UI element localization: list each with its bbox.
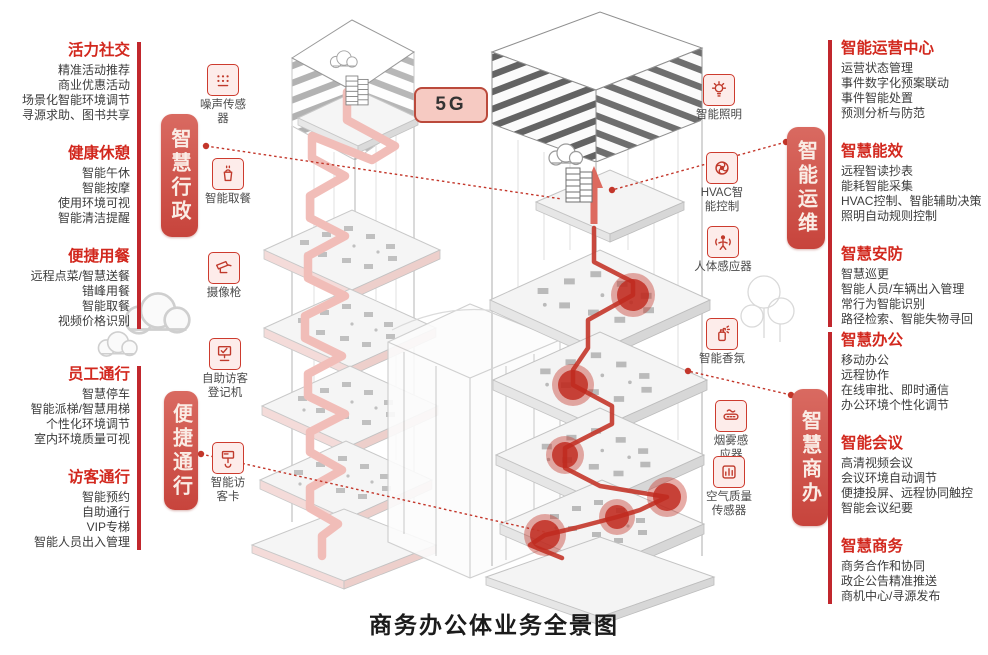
pill-smart-operations: 智能运维 xyxy=(787,127,825,249)
feature-item: 智能派梯/智慧用梯 xyxy=(8,402,130,417)
pill-smart-administration: 智慧行政 xyxy=(161,114,198,237)
feature-group: 智能会议 高清视频会议会议环境自动调节便捷投屏、远程协同触控智能会议纪要 xyxy=(841,435,988,516)
feature-item: 事件智能处置 xyxy=(841,91,988,106)
badge-5g: 5G xyxy=(414,87,488,123)
feature-item: 远程点菜/智慧送餐 xyxy=(8,269,130,284)
feature-item: 智能取餐 xyxy=(8,299,130,314)
feature-group-title: 智慧安防 xyxy=(841,246,988,264)
feature-group-items: 商务合作和协同政企公告精准推送商机中心/寻源发布 xyxy=(841,559,988,604)
feature-group-items: 高清视频会议会议环境自动调节便捷投屏、远程协同触控智能会议纪要 xyxy=(841,456,988,516)
feature-item: 常行为智能识别 xyxy=(841,297,988,312)
fragrance-icon xyxy=(706,318,738,350)
feature-group-items: 远程点菜/智慧送餐错峰用餐智能取餐视频价格识别 xyxy=(8,269,130,329)
feature-group: 健康休憩 智能午休智能按摩使用环境可视智能清洁提醒 xyxy=(8,145,130,226)
feature-item: 智能按摩 xyxy=(8,181,130,196)
feature-column-left-top: 活力社交 精准活动推荐商业优惠活动场景化智能环境调节寻源求助、图书共享 健康休憩… xyxy=(8,42,141,329)
feature-group: 员工通行 智慧停车智能派梯/智慧用梯个性化环境调节室内环境质量可视 xyxy=(8,366,130,447)
feature-item: 自助通行 xyxy=(8,505,130,520)
feature-group: 便捷用餐 远程点菜/智慧送餐错峰用餐智能取餐视频价格识别 xyxy=(8,248,130,329)
feature-group-items: 运营状态管理事件数字化预案联动事件智能处置预测分析与防范 xyxy=(841,61,988,121)
feature-item: 会议环境自动调节 xyxy=(841,471,988,486)
sensor-visitor-kiosk: 自助访客 登记机 xyxy=(194,338,256,400)
pill-convenient-access: 便捷通行 xyxy=(164,391,198,510)
feature-group: 智慧办公 移动办公远程协作在线审批、即时通信办公环境个性化调节 xyxy=(841,332,988,413)
noise-sensor-icon xyxy=(207,64,239,96)
feature-item: 高清视频会议 xyxy=(841,456,988,471)
feature-group-title: 健康休憩 xyxy=(8,145,130,163)
feature-group-title: 智慧商务 xyxy=(841,538,988,556)
sensor-presence: 人体感应器 xyxy=(692,226,754,275)
sensor-label: HVAC智 能控制 xyxy=(691,187,753,214)
sensor-air-quality: 空气质量 传感器 xyxy=(698,456,760,518)
hvac-control-icon xyxy=(706,152,738,184)
feature-item: HVAC控制、智能辅助决策 xyxy=(841,194,988,209)
feature-group-title: 智能运营中心 xyxy=(841,40,988,58)
feature-item: 远程智读抄表 xyxy=(841,164,988,179)
feature-group-title: 便捷用餐 xyxy=(8,248,130,266)
sensor-label: 噪声传感 器 xyxy=(192,99,254,126)
feature-item: 能耗智能采集 xyxy=(841,179,988,194)
sensor-label: 智能访 客卡 xyxy=(197,477,259,504)
feature-column-right-top: 智能运营中心 运营状态管理事件数字化预案联动事件智能处置预测分析与防范 智慧能效… xyxy=(828,40,988,327)
sensor-label: 摄像枪 xyxy=(193,287,255,301)
feature-group: 智慧能效 远程智读抄表能耗智能采集HVAC控制、智能辅助决策照明自动规则控制 xyxy=(841,143,988,224)
visitor-card-icon xyxy=(212,442,244,474)
feature-item: 政企公告精准推送 xyxy=(841,574,988,589)
visitor-kiosk-icon xyxy=(209,338,241,370)
panorama-diagram: 活力社交 精准活动推荐商业优惠活动场景化智能环境调节寻源求助、图书共享 健康休憩… xyxy=(0,0,988,655)
feature-group-title: 智慧办公 xyxy=(841,332,988,350)
feature-group-title: 智慧能效 xyxy=(841,143,988,161)
smart-lighting-icon xyxy=(703,74,735,106)
feature-item: 路径检索、智能失物寻回 xyxy=(841,312,988,327)
feature-item: 照明自动规则控制 xyxy=(841,209,988,224)
feature-item: 错峰用餐 xyxy=(8,284,130,299)
feature-column-right-bottom: 智慧办公 移动办公远程协作在线审批、即时通信办公环境个性化调节 智能会议 高清视… xyxy=(828,332,988,604)
sensor-fragrance: 智能香氛 xyxy=(691,318,753,367)
feature-item: 智慧巡更 xyxy=(841,267,988,282)
sensor-noise: 噪声传感 器 xyxy=(192,64,254,126)
sensor-label: 智能取餐 xyxy=(197,193,259,207)
feature-item: 智能人员出入管理 xyxy=(8,535,130,550)
feature-group-items: 智能午休智能按摩使用环境可视智能清洁提醒 xyxy=(8,166,130,226)
feature-item: VIP专梯 xyxy=(8,520,130,535)
feature-item: 事件数字化预案联动 xyxy=(841,76,988,91)
feature-item: 便捷投屏、远程协同触控 xyxy=(841,486,988,501)
feature-group-title: 活力社交 xyxy=(8,42,130,60)
feature-item: 在线审批、即时通信 xyxy=(841,383,988,398)
feature-item: 智能人员/车辆出入管理 xyxy=(841,282,988,297)
feature-group-items: 远程智读抄表能耗智能采集HVAC控制、智能辅助决策照明自动规则控制 xyxy=(841,164,988,224)
sensor-smart-lighting: 智能照明 xyxy=(688,74,750,123)
presence-sensor-icon xyxy=(707,226,739,258)
feature-group-title: 智能会议 xyxy=(841,435,988,453)
feature-item: 精准活动推荐 xyxy=(8,63,130,78)
feature-item: 移动办公 xyxy=(841,353,988,368)
cctv-camera-icon xyxy=(208,252,240,284)
feature-item: 商机中心/寻源发布 xyxy=(841,589,988,604)
feature-item: 预测分析与防范 xyxy=(841,106,988,121)
feature-item: 智能预约 xyxy=(8,490,130,505)
food-pickup-icon xyxy=(212,158,244,190)
feature-item: 商务合作和协同 xyxy=(841,559,988,574)
air-quality-icon xyxy=(713,456,745,488)
feature-group-items: 精准活动推荐商业优惠活动场景化智能环境调节寻源求助、图书共享 xyxy=(8,63,130,123)
feature-item: 场景化智能环境调节 xyxy=(8,93,130,108)
feature-group-items: 智慧停车智能派梯/智慧用梯个性化环境调节室内环境质量可视 xyxy=(8,387,130,447)
feature-item: 使用环境可视 xyxy=(8,196,130,211)
sensor-label: 智能照明 xyxy=(688,109,750,123)
feature-column-left-bottom: 员工通行 智慧停车智能派梯/智慧用梯个性化环境调节室内环境质量可视 访客通行 智… xyxy=(8,366,141,550)
feature-item: 个性化环境调节 xyxy=(8,417,130,432)
feature-group-title: 访客通行 xyxy=(8,469,130,487)
sensor-cctv-camera: 摄像枪 xyxy=(193,252,255,301)
feature-group-title: 员工通行 xyxy=(8,366,130,384)
feature-item: 远程协作 xyxy=(841,368,988,383)
feature-item: 智能午休 xyxy=(8,166,130,181)
feature-item: 商业优惠活动 xyxy=(8,78,130,93)
sensor-food-pickup: 智能取餐 xyxy=(197,158,259,207)
feature-group-items: 移动办公远程协作在线审批、即时通信办公环境个性化调节 xyxy=(841,353,988,413)
sensor-label: 人体感应器 xyxy=(692,261,754,275)
pill-smart-business-office: 智慧商办 xyxy=(792,389,828,526)
feature-item: 智慧停车 xyxy=(8,387,130,402)
smoke-sensor-icon xyxy=(715,400,747,432)
sensor-visitor-card: 智能访 客卡 xyxy=(197,442,259,504)
feature-item: 室内环境质量可视 xyxy=(8,432,130,447)
page-title: 商务办公体业务全景图 xyxy=(0,606,988,640)
feature-group-items: 智慧巡更智能人员/车辆出入管理常行为智能识别路径检索、智能失物寻回 xyxy=(841,267,988,327)
feature-group: 智能运营中心 运营状态管理事件数字化预案联动事件智能处置预测分析与防范 xyxy=(841,40,988,121)
feature-item: 智能会议纪要 xyxy=(841,501,988,516)
feature-group: 活力社交 精准活动推荐商业优惠活动场景化智能环境调节寻源求助、图书共享 xyxy=(8,42,130,123)
sensor-label: 空气质量 传感器 xyxy=(698,491,760,518)
feature-item: 寻源求助、图书共享 xyxy=(8,108,130,123)
feature-item: 智能清洁提醒 xyxy=(8,211,130,226)
sensor-label: 自助访客 登记机 xyxy=(194,373,256,400)
sensor-smoke: 烟雾感 应器 xyxy=(700,400,762,462)
feature-group: 访客通行 智能预约自助通行VIP专梯智能人员出入管理 xyxy=(8,469,130,550)
feature-group-items: 智能预约自助通行VIP专梯智能人员出入管理 xyxy=(8,490,130,550)
right-tower xyxy=(486,12,714,625)
sensor-hvac-control: HVAC智 能控制 xyxy=(691,152,753,214)
sensor-label: 智能香氛 xyxy=(691,353,753,367)
feature-item: 办公环境个性化调节 xyxy=(841,398,988,413)
feature-item: 运营状态管理 xyxy=(841,61,988,76)
feature-item: 视频价格识别 xyxy=(8,314,130,329)
feature-group: 智慧安防 智慧巡更智能人员/车辆出入管理常行为智能识别路径检索、智能失物寻回 xyxy=(841,246,988,327)
feature-group: 智慧商务 商务合作和协同政企公告精准推送商机中心/寻源发布 xyxy=(841,538,988,604)
